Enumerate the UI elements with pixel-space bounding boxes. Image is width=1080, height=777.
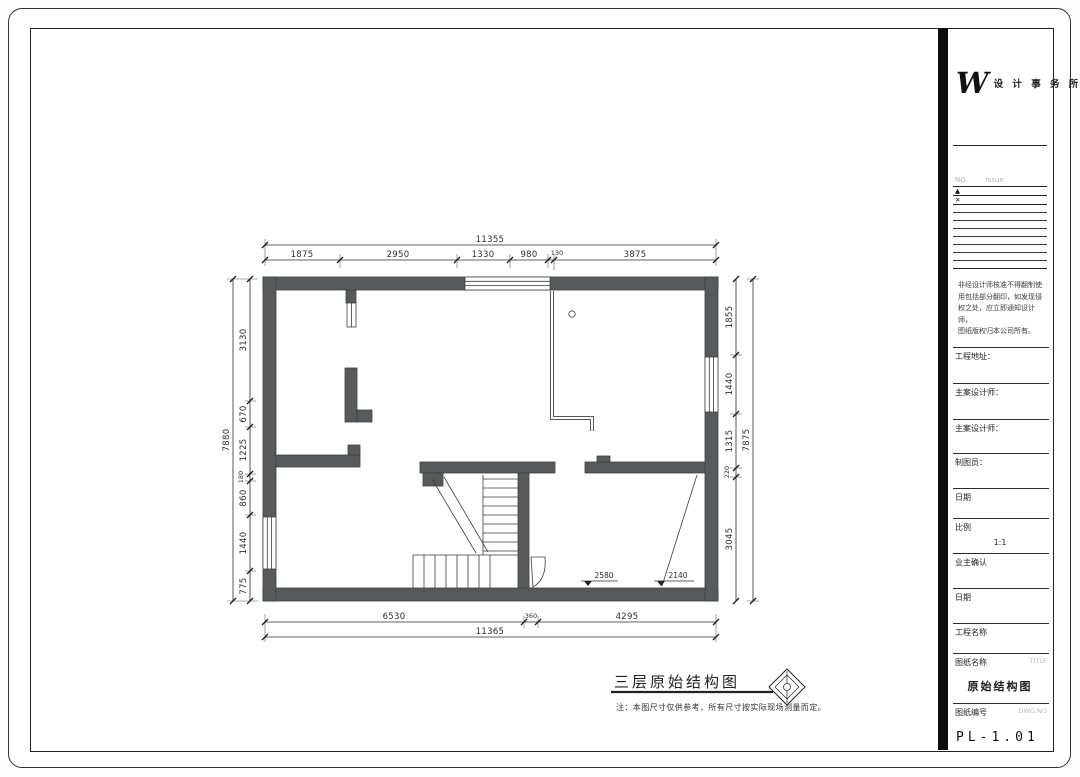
dim-label: 7880 <box>222 429 232 452</box>
field-sheet-number: 图纸编号 DWG.NO <box>953 703 1049 718</box>
dimension-bottom: 6530 360 4295 11365 <box>262 612 719 642</box>
dim-label: 180 <box>237 471 245 483</box>
fixture-circle-symbol <box>569 311 575 317</box>
sheet-name: 原始结构图 <box>948 678 1052 694</box>
field-date: 日期 <box>953 488 1049 503</box>
plan-note: 注：本图尺寸仅供参考，所有尺寸按实际现场测量而定。 <box>616 702 826 712</box>
level-markers: 2580 2140 <box>581 475 697 586</box>
sheet-number-text: PL-1.01 <box>956 730 1039 745</box>
field-lead-designer-2: 主案设计师： <box>953 419 1049 434</box>
divider <box>953 204 1047 205</box>
dim-label: 860 <box>239 489 249 506</box>
dim-label: 3045 <box>725 528 735 551</box>
field-label: 日期 <box>955 492 971 503</box>
dimension-right: 1855 1440 1315 220 3045 7875 <box>723 276 759 604</box>
scale-value-text: 1:1 <box>994 538 1007 547</box>
ruled-line <box>953 236 1047 237</box>
company-name: 设 计 事 务 所 <box>994 76 1080 90</box>
plan-title-group: 三层原始结构图 注：本图尺寸仅供参考，所有尺寸按实际现场测量而定。 <box>611 669 826 712</box>
field-owner-confirm: 业主确认 <box>953 553 1049 568</box>
field-label: 比例 <box>955 522 971 533</box>
floor-plan-drawing: 2580 2140 11355 1875 2950 1330 980 130 3… <box>0 0 940 777</box>
partition-line <box>552 291 592 431</box>
company-logo: W 设 计 事 务 所 <box>956 70 1080 96</box>
disclaimer-line: 权之处，应立即通知设计师， <box>958 303 1046 326</box>
field-label: 图纸编号 <box>955 707 987 718</box>
field-label: 图纸名称 <box>955 657 987 668</box>
ruled-line <box>953 252 1047 253</box>
divider <box>953 145 1047 146</box>
level-label: 2140 <box>668 571 687 580</box>
level-label: 2580 <box>594 571 613 580</box>
logo-w-icon: W <box>956 70 989 96</box>
field-label: 日期 <box>955 592 971 603</box>
ruled-line <box>953 244 1047 245</box>
field-scale: 比例 <box>953 518 1049 533</box>
door-swing <box>531 557 545 587</box>
divider <box>953 195 1047 196</box>
dim-label: 6530 <box>383 612 406 622</box>
outer-walls <box>263 277 718 601</box>
dim-label: 360 <box>525 612 537 620</box>
field-label: 工程名称 <box>955 627 987 638</box>
rev-no-label: NO. <box>955 176 968 184</box>
dim-label: 1330 <box>472 250 495 260</box>
dim-label: 1440 <box>725 373 735 396</box>
sheet-number: PL-1.01 <box>956 730 1039 745</box>
ruled-line <box>953 220 1047 221</box>
field-label: 制图员： <box>955 457 987 468</box>
dim-label: 775 <box>239 577 249 594</box>
dim-label: 11365 <box>476 627 505 637</box>
revision-triangle-icon: ▲ <box>955 188 960 194</box>
dim-label: 1315 <box>725 430 735 453</box>
rev-issue-label: Issue <box>986 176 1004 184</box>
field-project-name: 工程名称 <box>953 623 1049 638</box>
scale-value: 1:1 <box>948 538 1052 547</box>
window-right <box>705 357 718 412</box>
dim-label: 1225 <box>239 439 249 462</box>
dim-label: 4295 <box>616 612 639 622</box>
drawing-sheet: { "sheet": { "page_title": "三层原始结构图", "t… <box>0 0 1080 777</box>
title-block: W 设 计 事 务 所 NO. Issue ▲ ✕ 非经设计师核准不得翻制使 用… <box>948 28 1052 750</box>
ruled-line <box>953 260 1047 261</box>
dim-label: 1855 <box>725 306 735 329</box>
window-top <box>465 277 550 290</box>
dim-label: 2950 <box>387 250 410 260</box>
field-label: 业主确认 <box>955 557 987 568</box>
field-label: 主案设计师： <box>955 387 1003 398</box>
field-lead-designer: 主案设计师： <box>953 383 1049 398</box>
field-label: 工程地址： <box>955 351 995 362</box>
sheet-name-text: 原始结构图 <box>968 680 1033 693</box>
dim-label: 130 <box>551 249 563 257</box>
disclaimer-line: 用包括部分翻印，如发现侵 <box>958 292 1046 304</box>
field-drafter: 制图员： <box>953 453 1049 468</box>
ruled-line <box>953 228 1047 229</box>
revision-x-icon: ✕ <box>955 197 960 203</box>
dim-label: 980 <box>520 250 537 260</box>
interior-walls <box>276 290 705 588</box>
compass-icon <box>769 669 805 705</box>
ruled-line <box>953 268 1047 269</box>
revision-header: NO. Issue <box>955 176 1004 184</box>
dim-label: 7875 <box>742 429 752 452</box>
field-label: 主案设计师： <box>955 423 1003 434</box>
staircase <box>413 475 518 588</box>
dim-label: 1875 <box>291 250 314 260</box>
field-label-en: TITLE <box>1029 657 1049 668</box>
window-left <box>263 517 276 569</box>
dim-label: 670 <box>239 405 249 422</box>
dim-label: 1440 <box>239 532 249 555</box>
ruled-line <box>953 212 1047 213</box>
dim-label: 11355 <box>476 235 505 245</box>
dim-label: 3875 <box>624 250 647 260</box>
field-project-address: 工程地址： <box>953 347 1049 362</box>
dim-label: 3130 <box>239 329 249 352</box>
plan-title: 三层原始结构图 <box>614 673 740 691</box>
divider <box>953 186 1047 187</box>
dimension-top: 11355 1875 2950 1330 980 130 3875 <box>262 235 719 270</box>
copyright-disclaimer: 非经设计师核准不得翻制使 用包括部分翻印，如发现侵 权之处，应立即通知设计师， … <box>958 280 1046 338</box>
disclaimer-line: 非经设计师核准不得翻制使 <box>958 280 1046 292</box>
disclaimer-line: 图纸版权归本公司所有。 <box>958 326 1046 338</box>
field-label-en: DWG.NO <box>1018 707 1049 718</box>
field-date-2: 日期 <box>953 588 1049 603</box>
dimension-left: 7880 3130 670 1225 180 860 1440 775 <box>222 276 258 604</box>
dim-label: 220 <box>723 466 731 478</box>
field-sheet-name: 图纸名称 TITLE <box>953 653 1049 668</box>
